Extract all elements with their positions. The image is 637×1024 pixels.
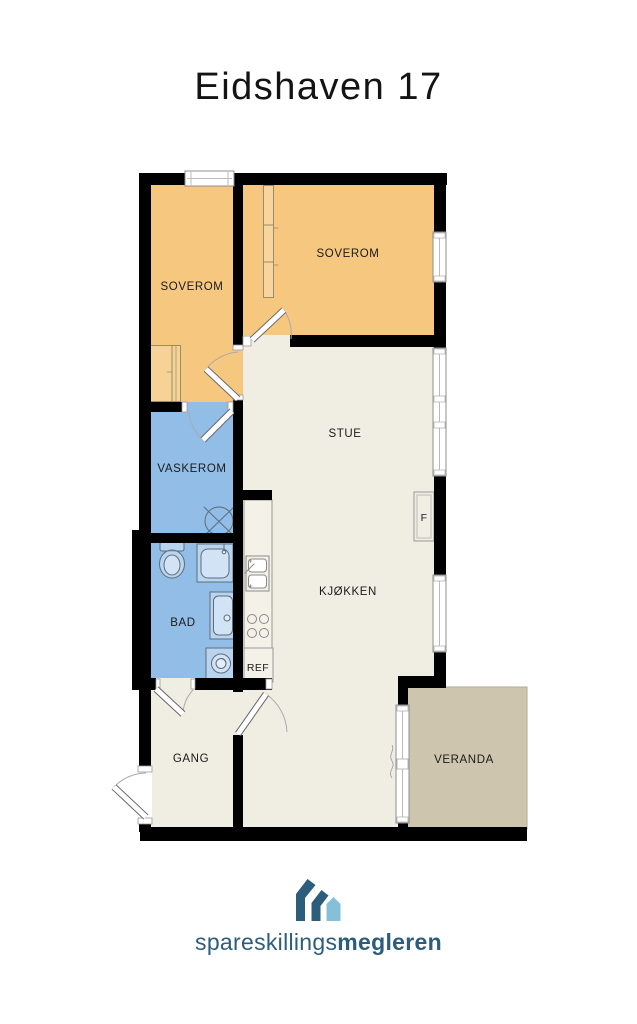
- label-gang: GANG: [173, 753, 209, 765]
- washing-machine-icon: [206, 648, 236, 679]
- label-soverom-left: SOVEROM: [161, 281, 224, 293]
- label-kjokken: KJØKKEN: [319, 586, 377, 598]
- label-bad: BAD: [170, 617, 195, 629]
- page: Eidshaven 17: [0, 0, 637, 1024]
- label-stue: STUE: [328, 428, 361, 440]
- brand-name-bold: megleren: [337, 929, 442, 955]
- brand-name-regular: spareskillings: [195, 929, 337, 955]
- washbasin-icon: [197, 544, 233, 582]
- closet-icon: [151, 346, 181, 402]
- house-logo-icon: [295, 878, 343, 922]
- label-ref: REF: [247, 662, 269, 674]
- shower-icon: [210, 592, 236, 639]
- floor-plan: SOVEROM SOVEROM STUE VASKEROM BAD KJØKKE…: [0, 0, 637, 1024]
- label-fireplace: F: [421, 512, 428, 524]
- window-bedroom-top: [185, 171, 234, 186]
- window-kitchen-right: [433, 575, 446, 652]
- brand-logo: spareskillingsmegleren: [0, 878, 637, 956]
- toilet-icon: [160, 542, 185, 578]
- brand-name: spareskillingsmegleren: [0, 929, 637, 956]
- kitchen-counter: [244, 500, 273, 682]
- label-vaskerom: VASKEROM: [157, 463, 226, 475]
- window-bedroom-right: [433, 232, 446, 282]
- label-veranda: VERANDA: [434, 754, 494, 766]
- label-soverom-right: SOVEROM: [317, 248, 380, 260]
- room-floors: [141, 179, 527, 829]
- window-stue-right: [433, 348, 446, 476]
